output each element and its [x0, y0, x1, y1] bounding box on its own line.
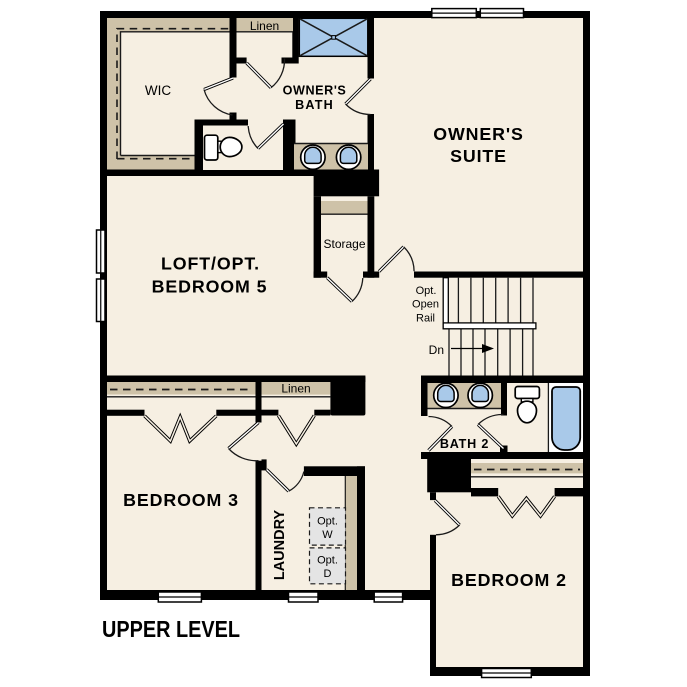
svg-text:BEDROOM 3: BEDROOM 3 [123, 490, 239, 510]
svg-text:BEDROOM 5: BEDROOM 5 [152, 276, 268, 296]
svg-text:SUITE: SUITE [450, 146, 507, 166]
svg-text:Open: Open [412, 299, 439, 311]
svg-text:BEDROOM 2: BEDROOM 2 [451, 570, 567, 590]
svg-text:OWNER'S: OWNER'S [283, 83, 347, 97]
svg-text:BATH 2: BATH 2 [440, 437, 489, 451]
svg-text:UPPER LEVEL: UPPER LEVEL [102, 615, 240, 642]
svg-text:Storage: Storage [323, 237, 365, 251]
svg-text:WIC: WIC [145, 83, 171, 98]
svg-text:Opt.: Opt. [317, 555, 338, 567]
svg-text:Linen: Linen [281, 382, 310, 396]
svg-text:Dn: Dn [429, 343, 444, 357]
svg-text:Linen: Linen [250, 19, 279, 33]
svg-text:LAUNDRY: LAUNDRY [272, 510, 288, 581]
svg-text:OWNER'S: OWNER'S [433, 124, 524, 144]
svg-text:D: D [324, 568, 332, 580]
svg-text:Opt.: Opt. [317, 516, 338, 528]
svg-text:LOFT/OPT.: LOFT/OPT. [161, 254, 260, 274]
svg-text:W: W [322, 529, 333, 541]
svg-text:Rail: Rail [416, 312, 435, 324]
svg-text:BATH: BATH [295, 98, 334, 112]
svg-text:Opt.: Opt. [416, 285, 437, 297]
